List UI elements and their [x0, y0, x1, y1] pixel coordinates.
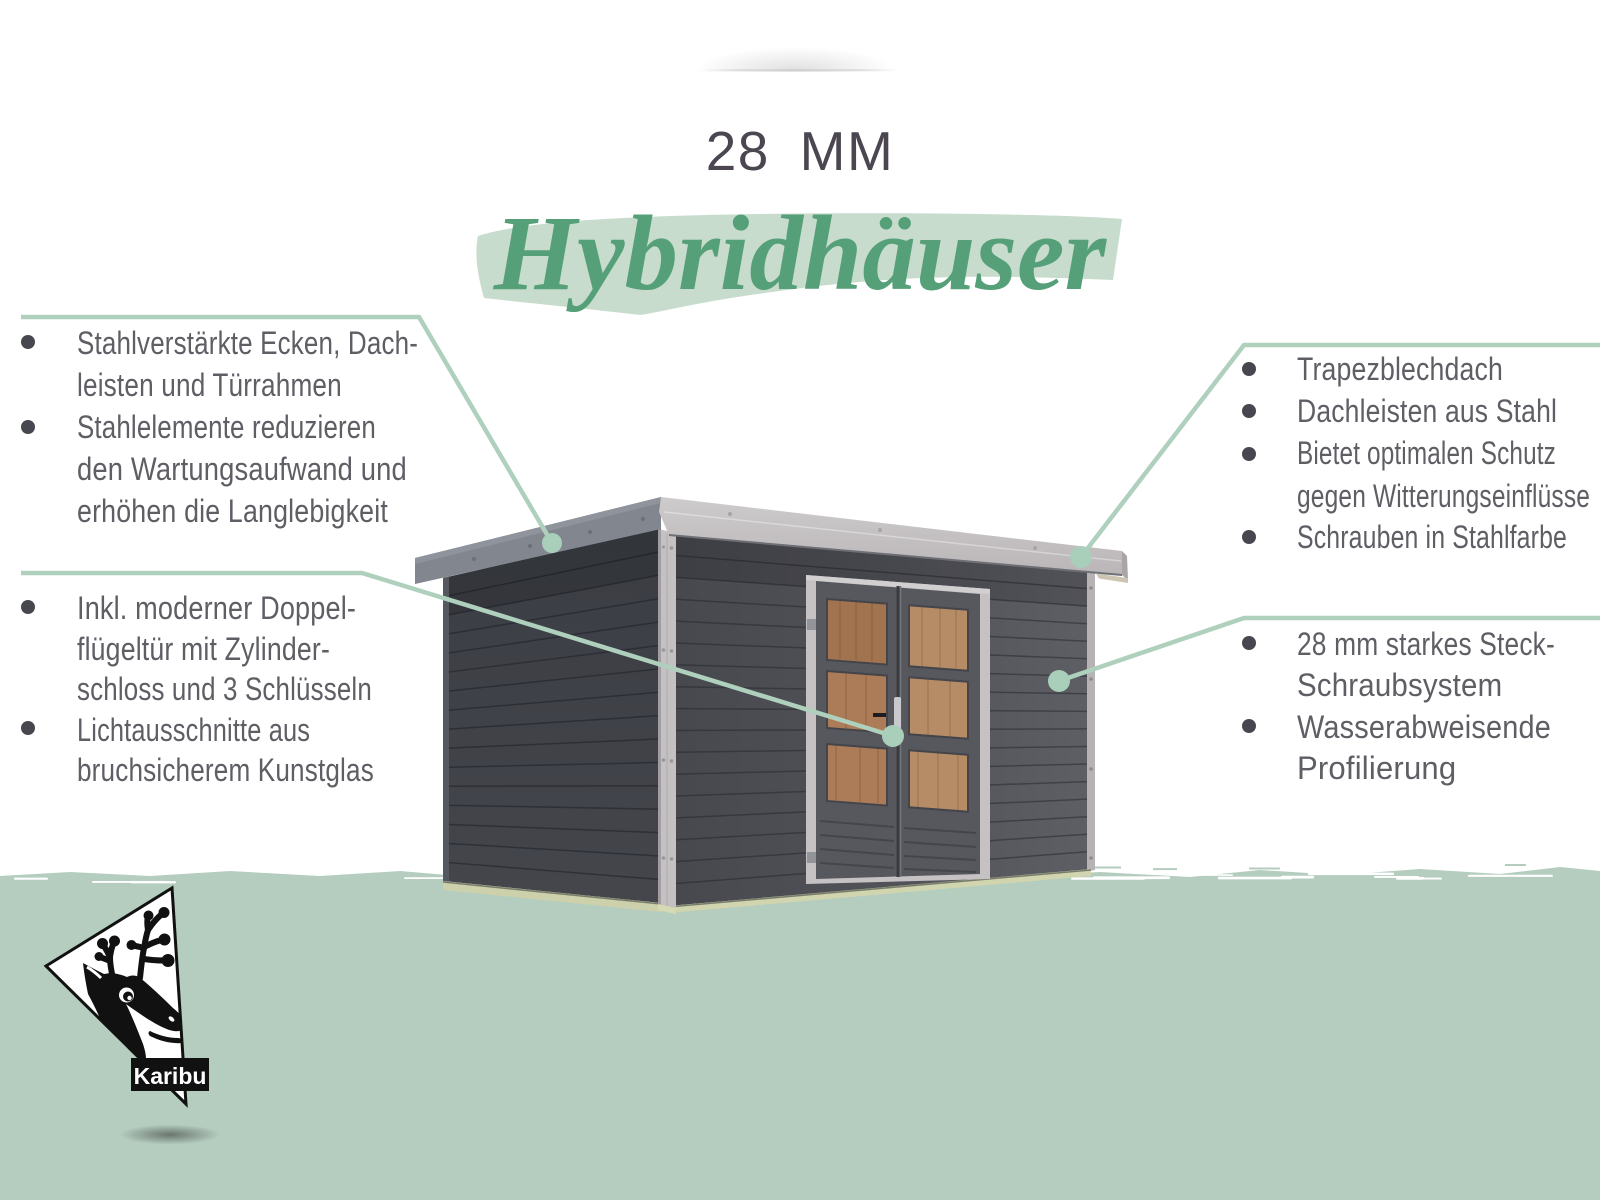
svg-text:Karibu: Karibu — [134, 1063, 207, 1089]
